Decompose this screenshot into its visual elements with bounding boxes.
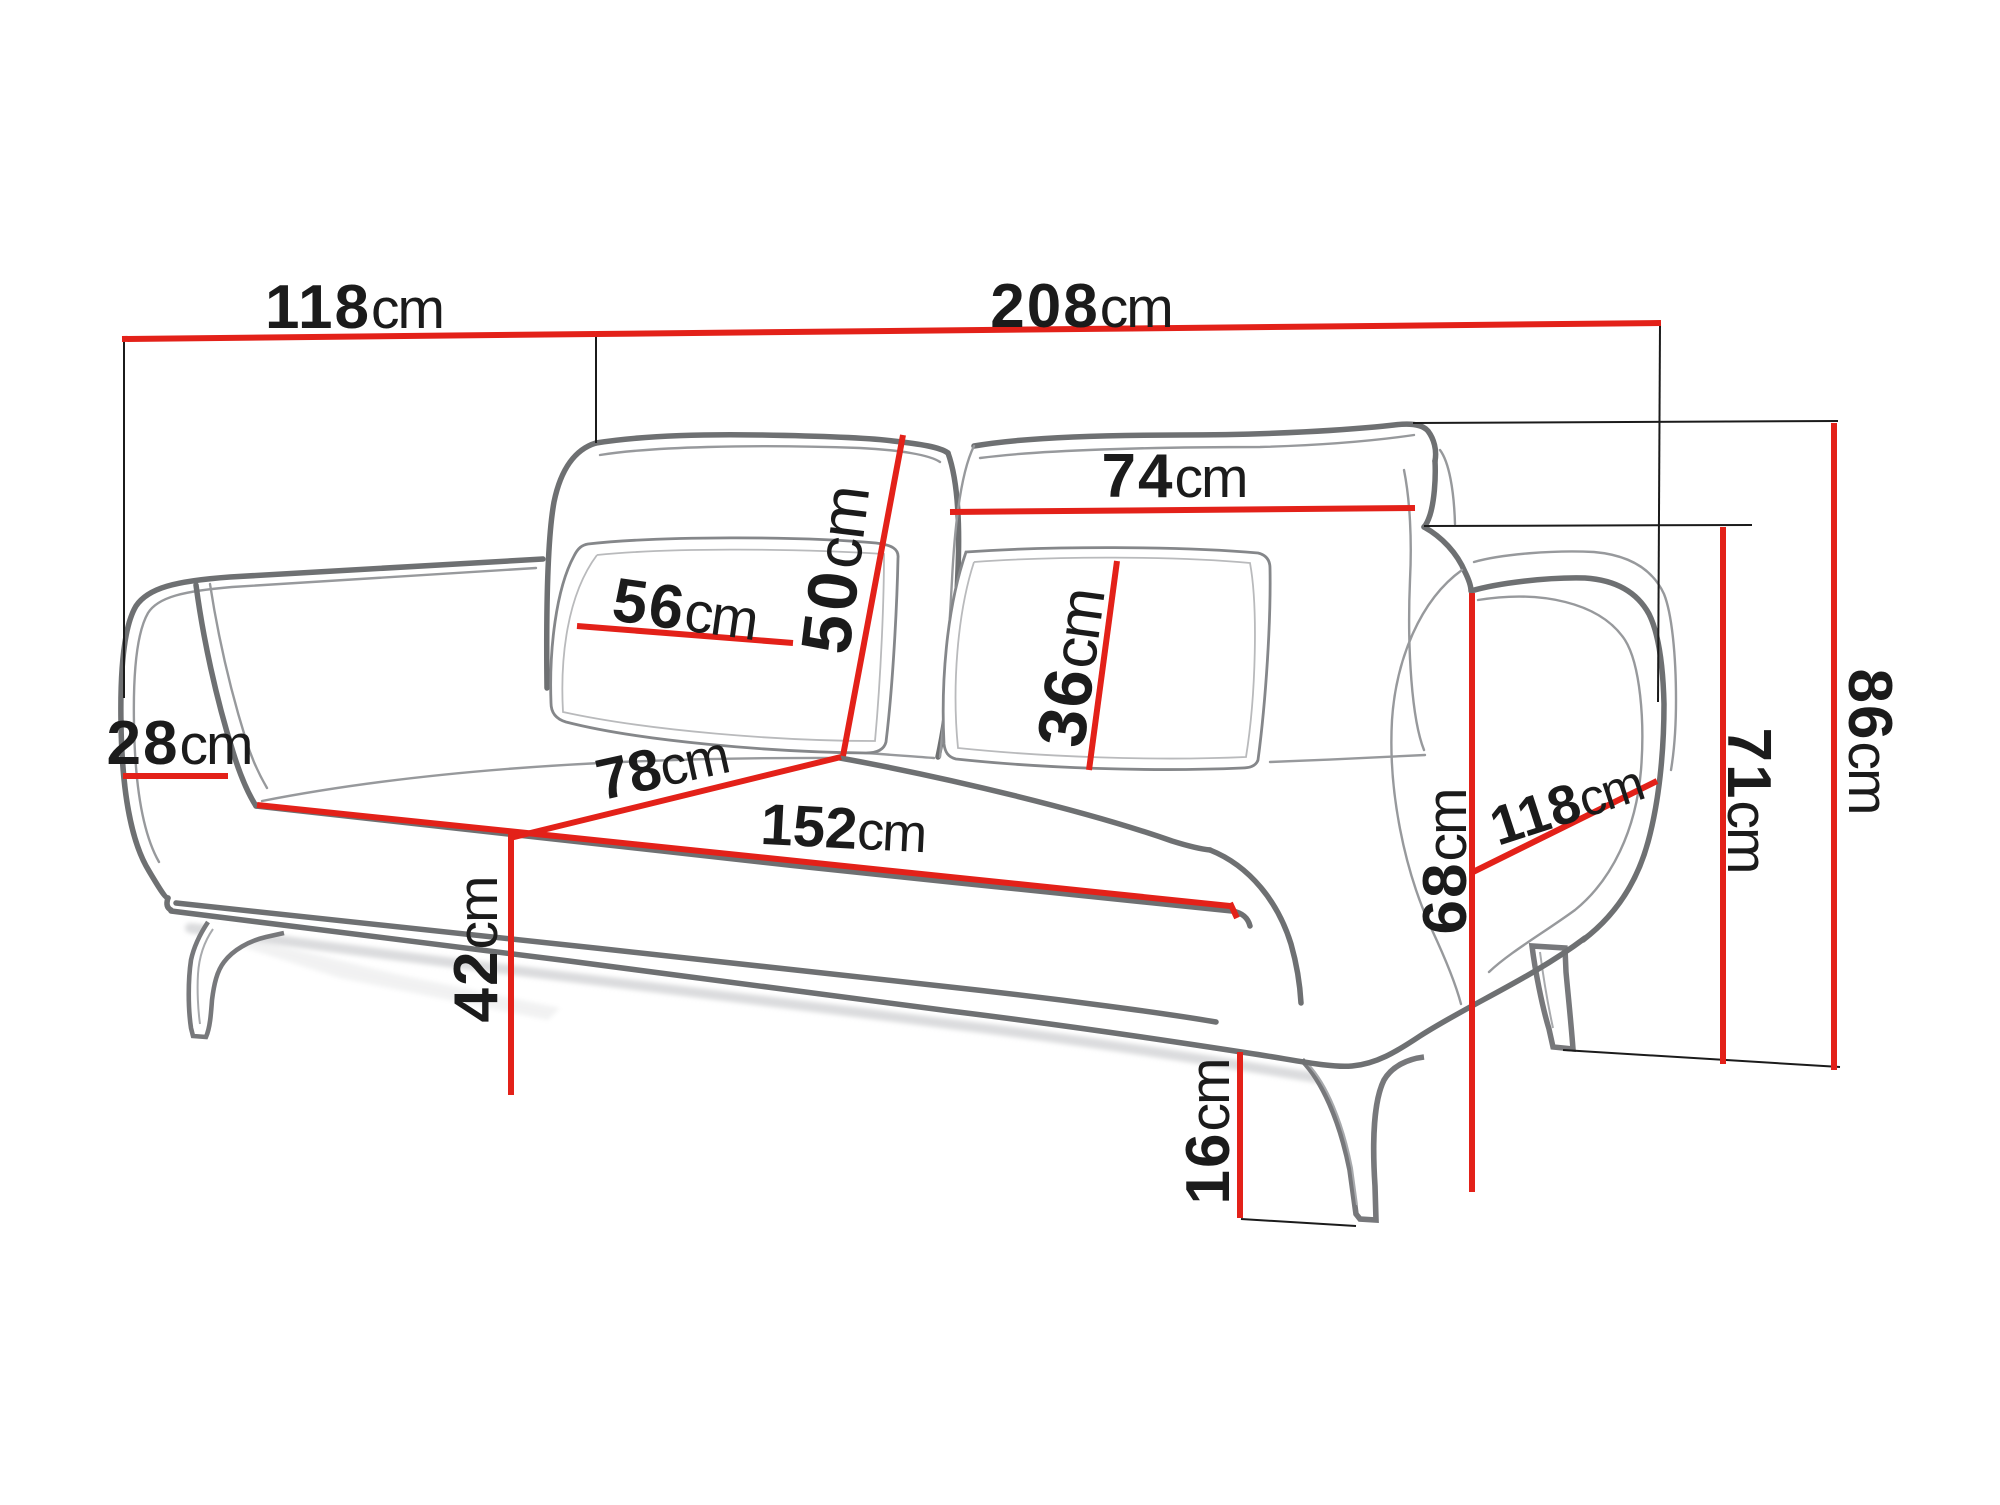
svg-text:208cm: 208cm bbox=[990, 272, 1171, 341]
svg-text:86cm: 86cm bbox=[1835, 669, 1904, 814]
svg-text:16cm: 16cm bbox=[1174, 1060, 1243, 1205]
svg-text:68cm: 68cm bbox=[1411, 790, 1480, 935]
svg-text:74cm: 74cm bbox=[1102, 442, 1247, 511]
svg-text:28cm: 28cm bbox=[107, 709, 252, 778]
svg-text:118cm: 118cm bbox=[265, 273, 443, 342]
svg-text:42cm: 42cm bbox=[442, 878, 511, 1023]
svg-text:71cm: 71cm bbox=[1714, 728, 1783, 873]
svg-text:152cm: 152cm bbox=[759, 792, 927, 866]
